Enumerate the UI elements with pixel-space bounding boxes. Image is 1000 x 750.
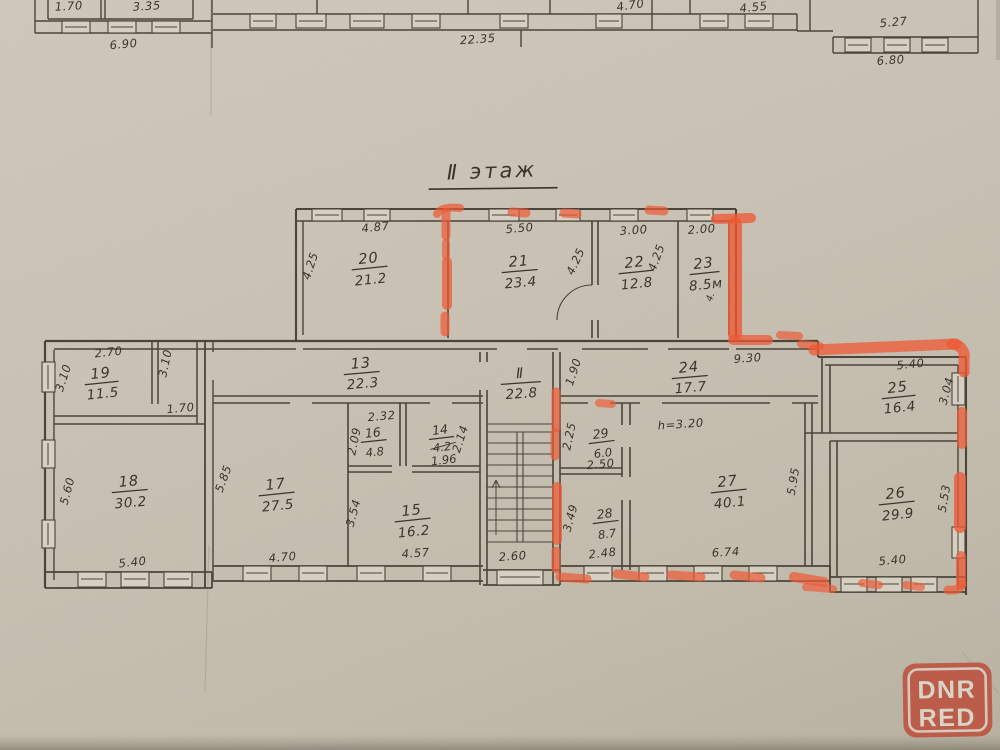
dim-top-680: 6.80 <box>876 52 905 68</box>
dim-top-2235: 22.35 <box>459 31 496 47</box>
dim-corridor24-width: 9.30 <box>733 350 762 366</box>
room-number: 13 <box>350 355 372 373</box>
room-number: 27 <box>717 473 739 491</box>
room-area: 22.3 <box>346 375 379 394</box>
paper-texture <box>0 0 1000 750</box>
dim-room20-width: 4.87 <box>361 219 390 236</box>
room-area: 17.7 <box>674 379 707 398</box>
dim-room27-bottom: 6.74 <box>711 544 740 559</box>
room-area: 16.4 <box>883 398 917 417</box>
room-area: 23.4 <box>504 274 537 293</box>
dim-top-170: 1.70 <box>54 0 83 14</box>
room-area: 12.8 <box>620 274 654 293</box>
room-area: 30.2 <box>114 494 147 513</box>
dim-room29-bottom: 2.50 <box>586 456 615 472</box>
dim-room19-width: 2.70 <box>94 344 123 361</box>
dim-room28-bottom: 2.48 <box>588 545 617 562</box>
room-area: 21.2 <box>354 270 388 289</box>
dim-room22-width: 3.00 <box>619 222 648 238</box>
dnr-red-watermark: DNR RED <box>902 662 992 738</box>
room-area: 29.9 <box>881 505 915 524</box>
dim-top-527: 5.27 <box>879 14 908 30</box>
dim-top-335: 3.35 <box>132 0 161 14</box>
room-number: 18 <box>118 473 140 491</box>
dim-room23-width: 2.00 <box>687 221 716 237</box>
room-number: 17 <box>265 476 287 494</box>
room-number: Ⅱ <box>516 366 525 383</box>
floor-plan-scan: Ⅱ этаж 20 21.2 21 23.4 22 12.8 23 8.5м 1… <box>0 0 1000 750</box>
dim-room26-bottom: 5.40 <box>878 552 907 568</box>
floor-plan-drawing: Ⅱ этаж 20 21.2 21 23.4 22 12.8 23 8.5м 1… <box>0 0 1000 750</box>
room-number: 22 <box>624 254 646 272</box>
dim-room15-bottom: 4.57 <box>401 545 430 561</box>
watermark-line2: RED <box>918 703 976 732</box>
room-area: 16.2 <box>397 522 431 541</box>
room-number: 29 <box>592 425 610 442</box>
room-number: 15 <box>401 502 423 520</box>
room-number: 21 <box>508 253 530 271</box>
room-area: 8.7 <box>597 526 618 542</box>
scan-edge-artifact <box>996 0 1000 60</box>
dim-room18-bottom: 5.40 <box>118 554 147 571</box>
dim-stair-bottom: 2.60 <box>498 548 527 564</box>
dim-room17-bottom: 4.70 <box>268 549 297 565</box>
room-area: 27.5 <box>261 496 295 515</box>
room-number: 26 <box>885 485 907 503</box>
watermark-line1: DNR <box>917 675 976 704</box>
room-number: 25 <box>887 379 909 397</box>
room-number: 14 <box>431 421 449 438</box>
room-number: 23 <box>693 255 715 273</box>
room-area: 22.8 <box>505 385 538 403</box>
room-area: 4.8 <box>365 444 385 460</box>
room-number: 20 <box>358 250 380 268</box>
dim-room16-width: 2.32 <box>367 408 396 424</box>
room-number: 16 <box>364 424 381 441</box>
floor-title-text: Ⅱ этаж <box>446 157 537 184</box>
room-number: 28 <box>596 505 614 522</box>
room-area: 11.5 <box>86 384 120 403</box>
dim-top-690: 6.90 <box>109 36 138 52</box>
dim-room25-width: 5.40 <box>896 356 925 373</box>
room-number: 19 <box>90 365 112 383</box>
photo-edge-shadow <box>0 734 1000 750</box>
room-area: 40.1 <box>713 493 747 512</box>
dim-room21-width: 5.50 <box>505 220 534 236</box>
dim-room19-bottom: 1.70 <box>166 400 195 416</box>
room-number: 24 <box>678 359 700 377</box>
